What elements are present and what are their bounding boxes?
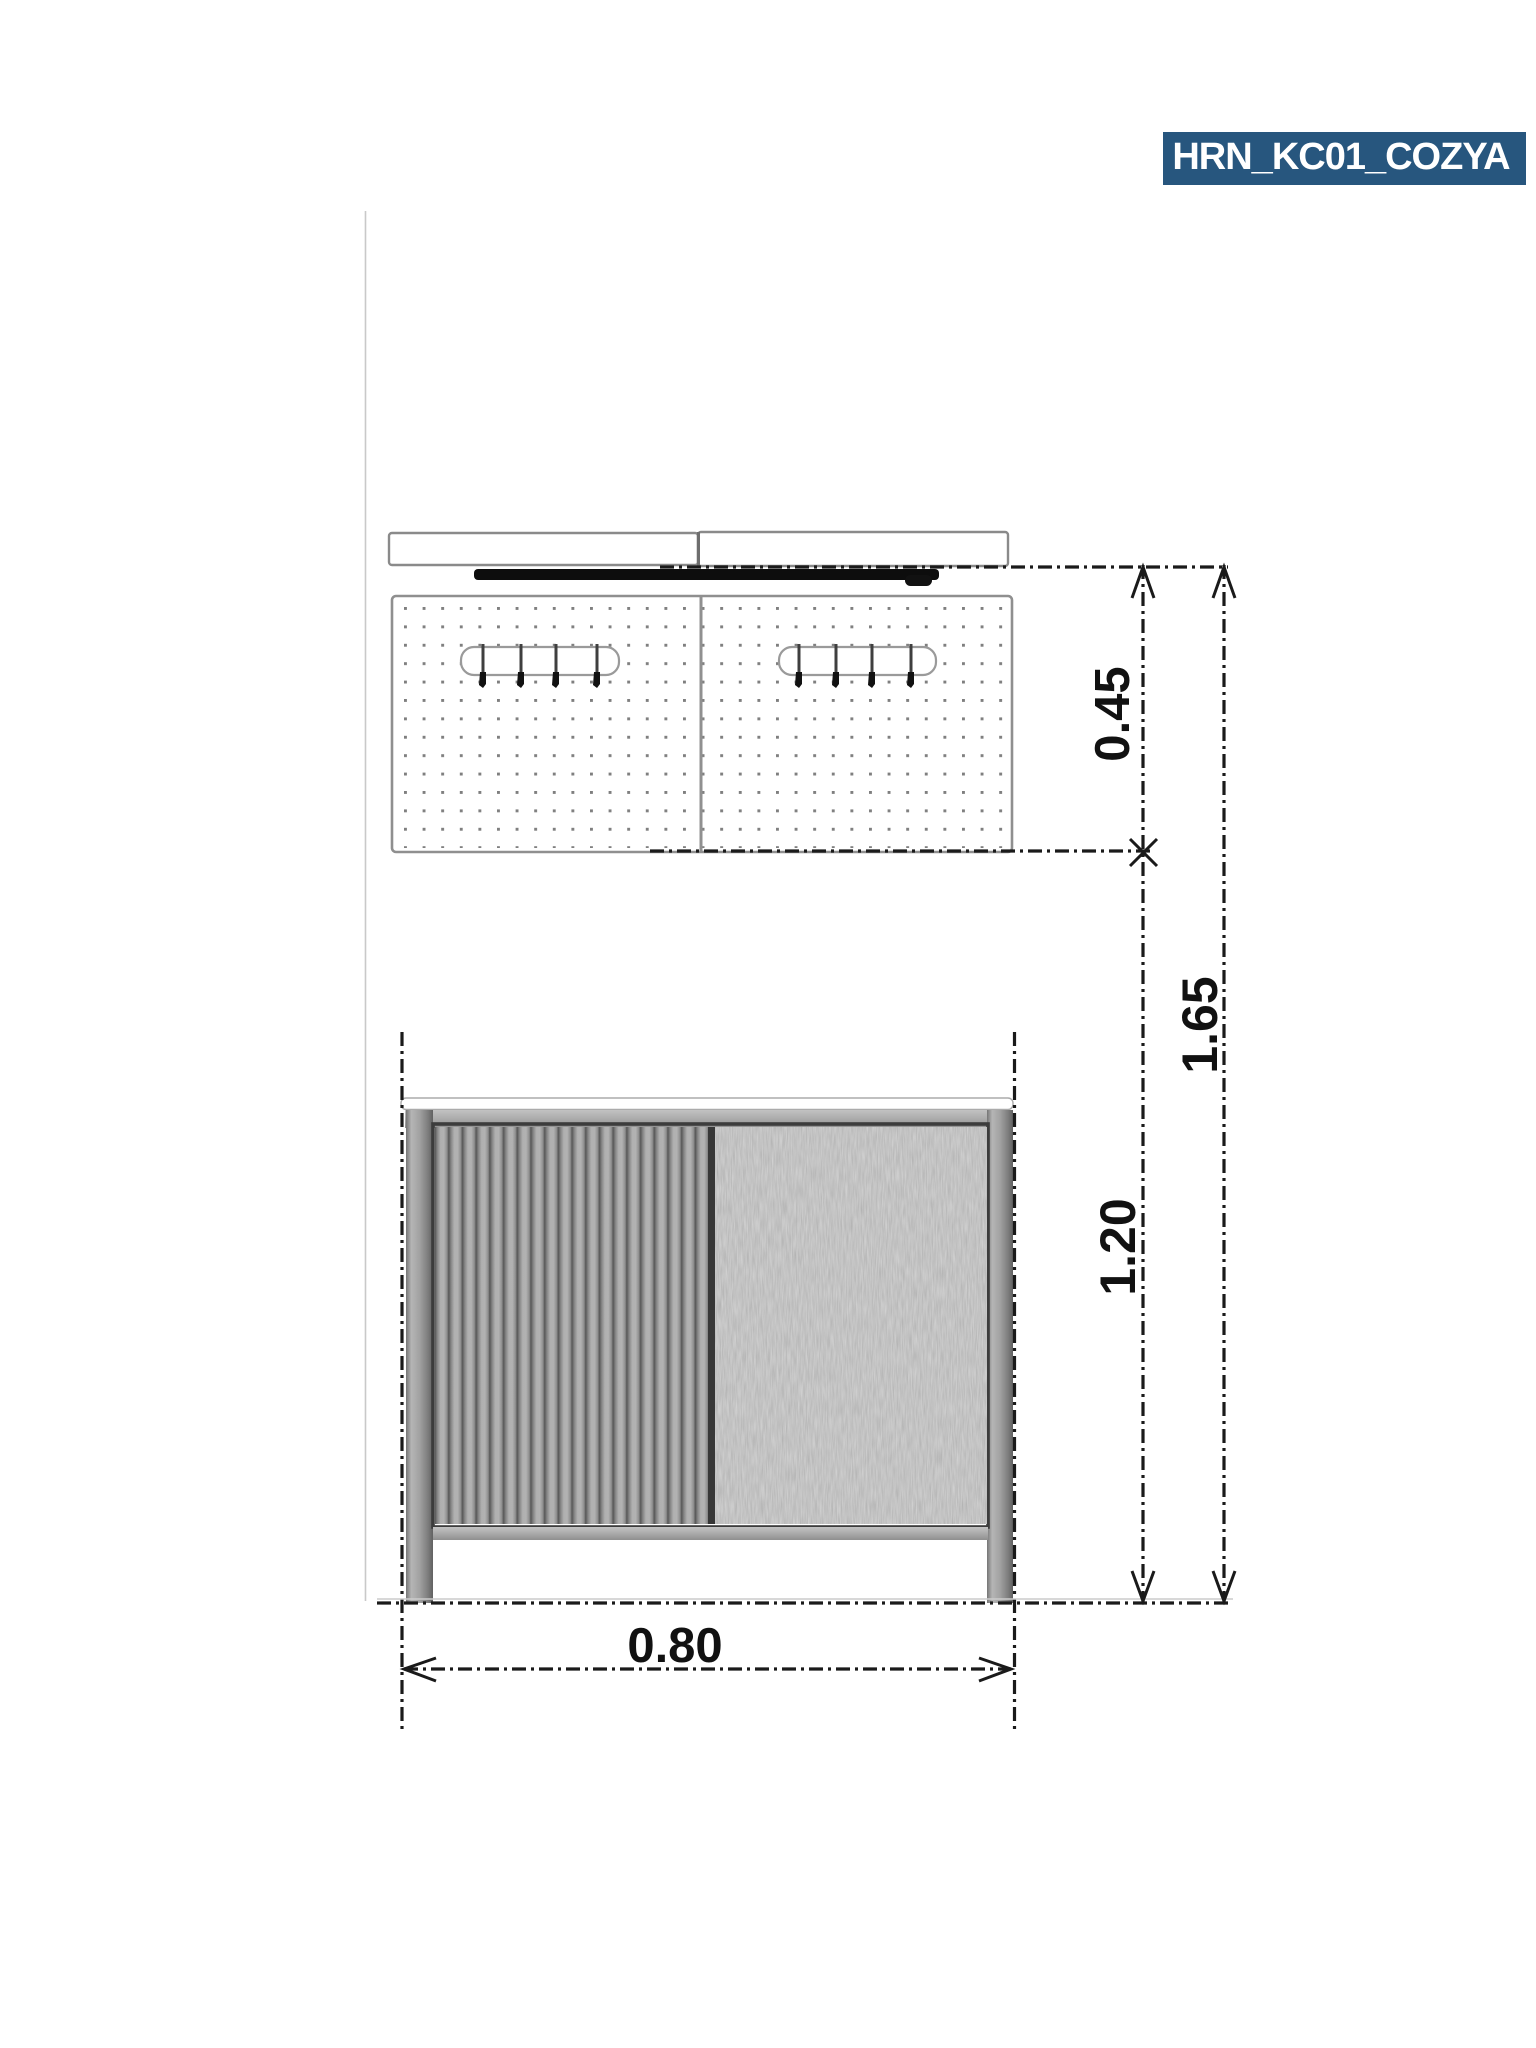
svg-text:1.65: 1.65: [1172, 976, 1228, 1073]
svg-text:0.45: 0.45: [1086, 666, 1140, 761]
svg-text:0.80: 0.80: [627, 1619, 722, 1673]
svg-text:HRN_KC01_COZYA: HRN_KC01_COZYA: [1172, 136, 1510, 178]
svg-text:1.20: 1.20: [1090, 1198, 1146, 1295]
